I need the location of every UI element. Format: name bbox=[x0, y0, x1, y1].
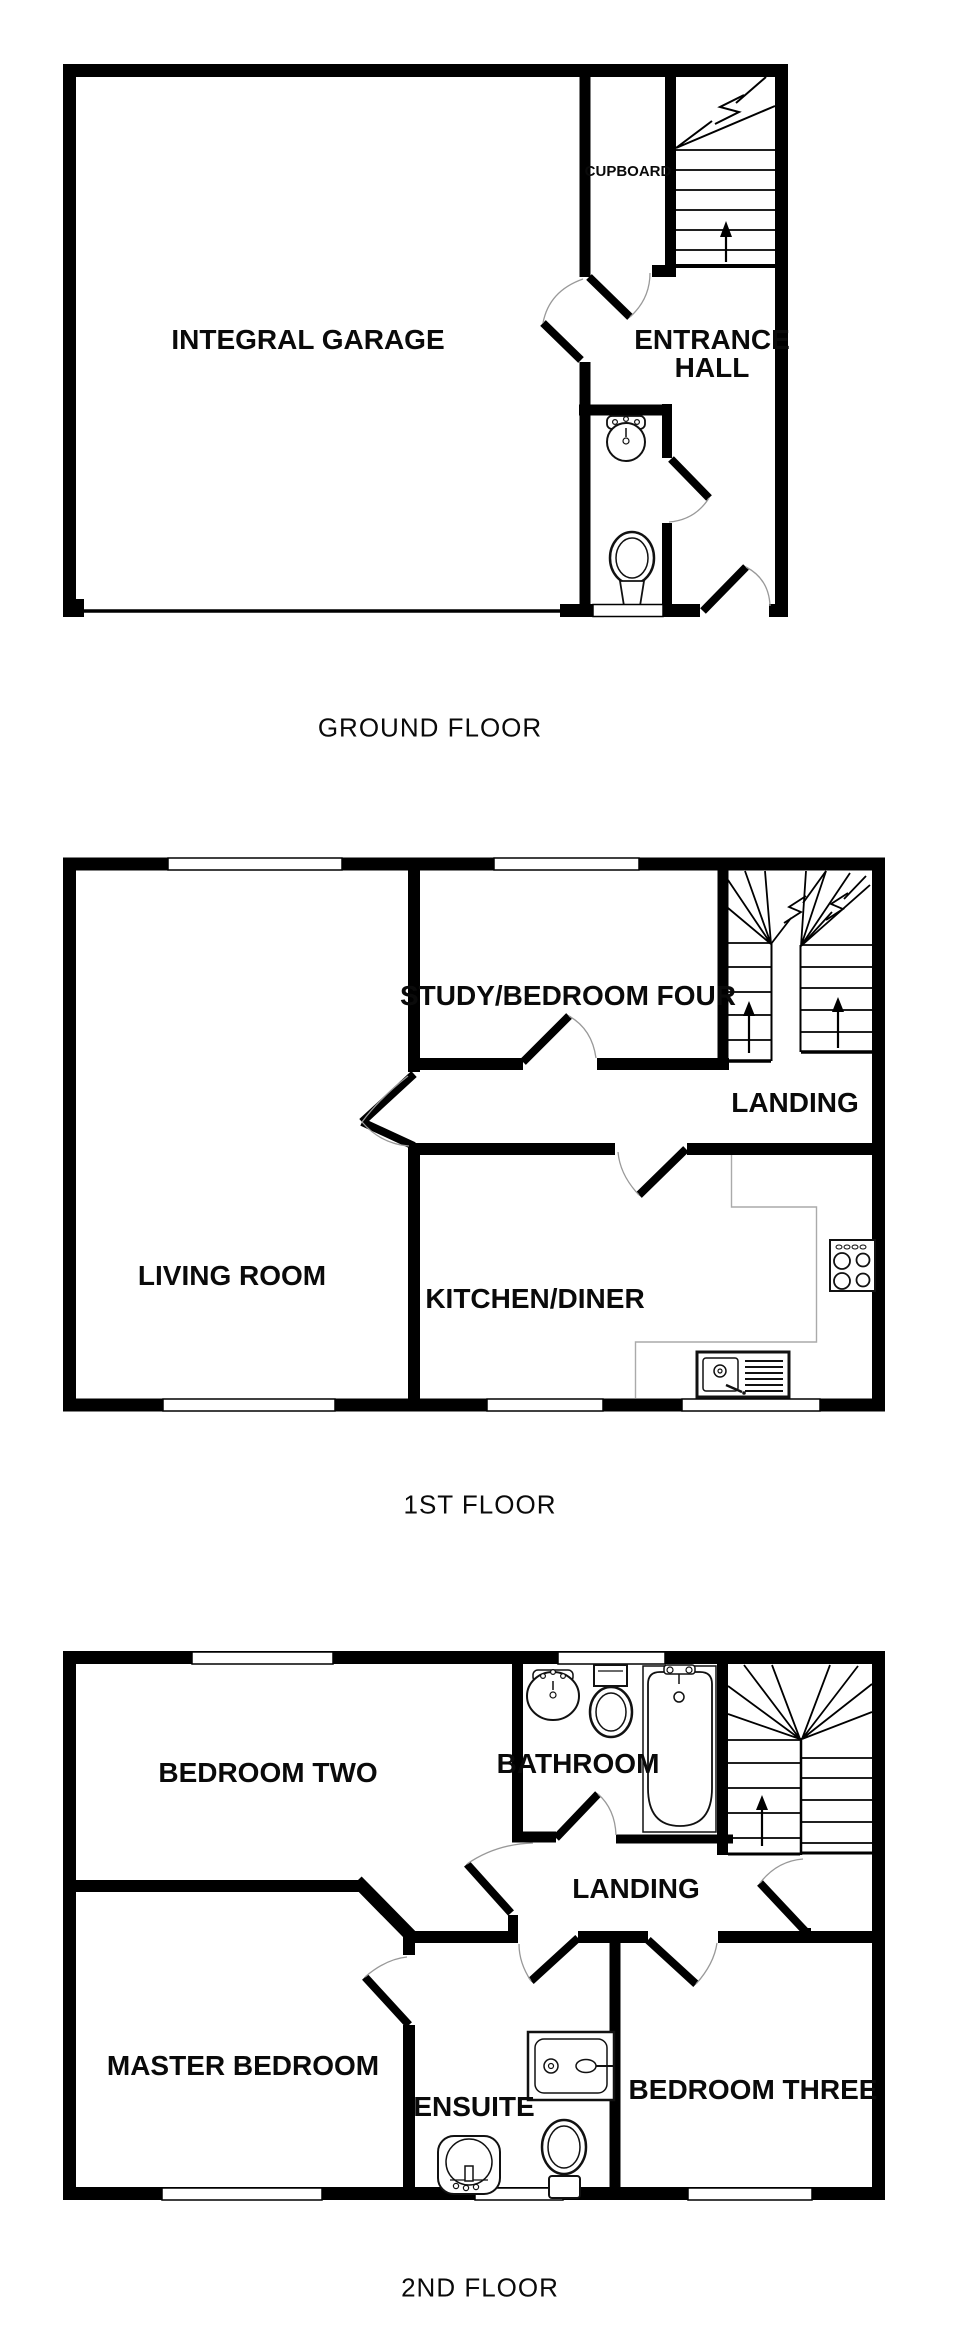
shower-icon bbox=[528, 2032, 614, 2100]
second-staircase-icon bbox=[728, 1665, 872, 1855]
first-walls bbox=[63, 864, 885, 1405]
room-label-bedroom-two: BEDROOM TWO bbox=[158, 1759, 377, 1787]
up-arrow-icon bbox=[743, 997, 844, 1053]
room-label-garage: INTEGRAL GARAGE bbox=[171, 326, 444, 354]
cooktop-icon bbox=[830, 1240, 875, 1291]
kitchen-sink-icon bbox=[697, 1352, 789, 1397]
ground-window-icon bbox=[593, 605, 663, 617]
room-label-landing-1st: LANDING bbox=[731, 1089, 859, 1117]
ensuite-toilet-icon bbox=[542, 2120, 586, 2198]
floorplan-drawing bbox=[0, 0, 980, 2333]
first-staircase-icon bbox=[728, 871, 872, 1061]
room-label-living: LIVING ROOM bbox=[138, 1262, 326, 1290]
ground-staircase-icon bbox=[676, 77, 775, 266]
wc-sink-icon bbox=[607, 416, 645, 461]
first-floor-plan bbox=[63, 858, 885, 1411]
floor-caption-2nd: 2ND FLOOR bbox=[401, 2273, 559, 2304]
room-label-bathroom: BATHROOM bbox=[497, 1750, 660, 1778]
room-label-ensuite: ENSUITE bbox=[413, 2093, 534, 2121]
room-label-landing-2nd: LANDING bbox=[572, 1875, 700, 1903]
floor-caption-1st: 1ST FLOOR bbox=[403, 1490, 556, 1521]
room-label-cupboard: CUPBOARD bbox=[585, 158, 672, 186]
room-label-master: MASTER BEDROOM bbox=[107, 2052, 379, 2080]
room-label-bedroom-three: BEDROOM THREE bbox=[629, 2076, 878, 2104]
room-label-entrance-hall: ENTRANCE HALL bbox=[632, 326, 792, 382]
wc-toilet-icon bbox=[610, 532, 654, 606]
second-doors bbox=[365, 1794, 806, 2025]
ensuite-sink-icon bbox=[438, 2136, 500, 2194]
floor-caption-ground: GROUND FLOOR bbox=[318, 713, 542, 744]
bathroom-sink-icon bbox=[527, 1670, 579, 1720]
floorplan-canvas: INTEGRAL GARAGE CUPBOARD ENTRANCE HALL G… bbox=[0, 0, 980, 2333]
room-label-study: STUDY/BEDROOM FOUR bbox=[400, 982, 736, 1010]
up-arrow-icon bbox=[720, 221, 732, 262]
room-label-kitchen: KITCHEN/DINER bbox=[425, 1285, 644, 1313]
bathroom-toilet-icon bbox=[590, 1665, 632, 1737]
